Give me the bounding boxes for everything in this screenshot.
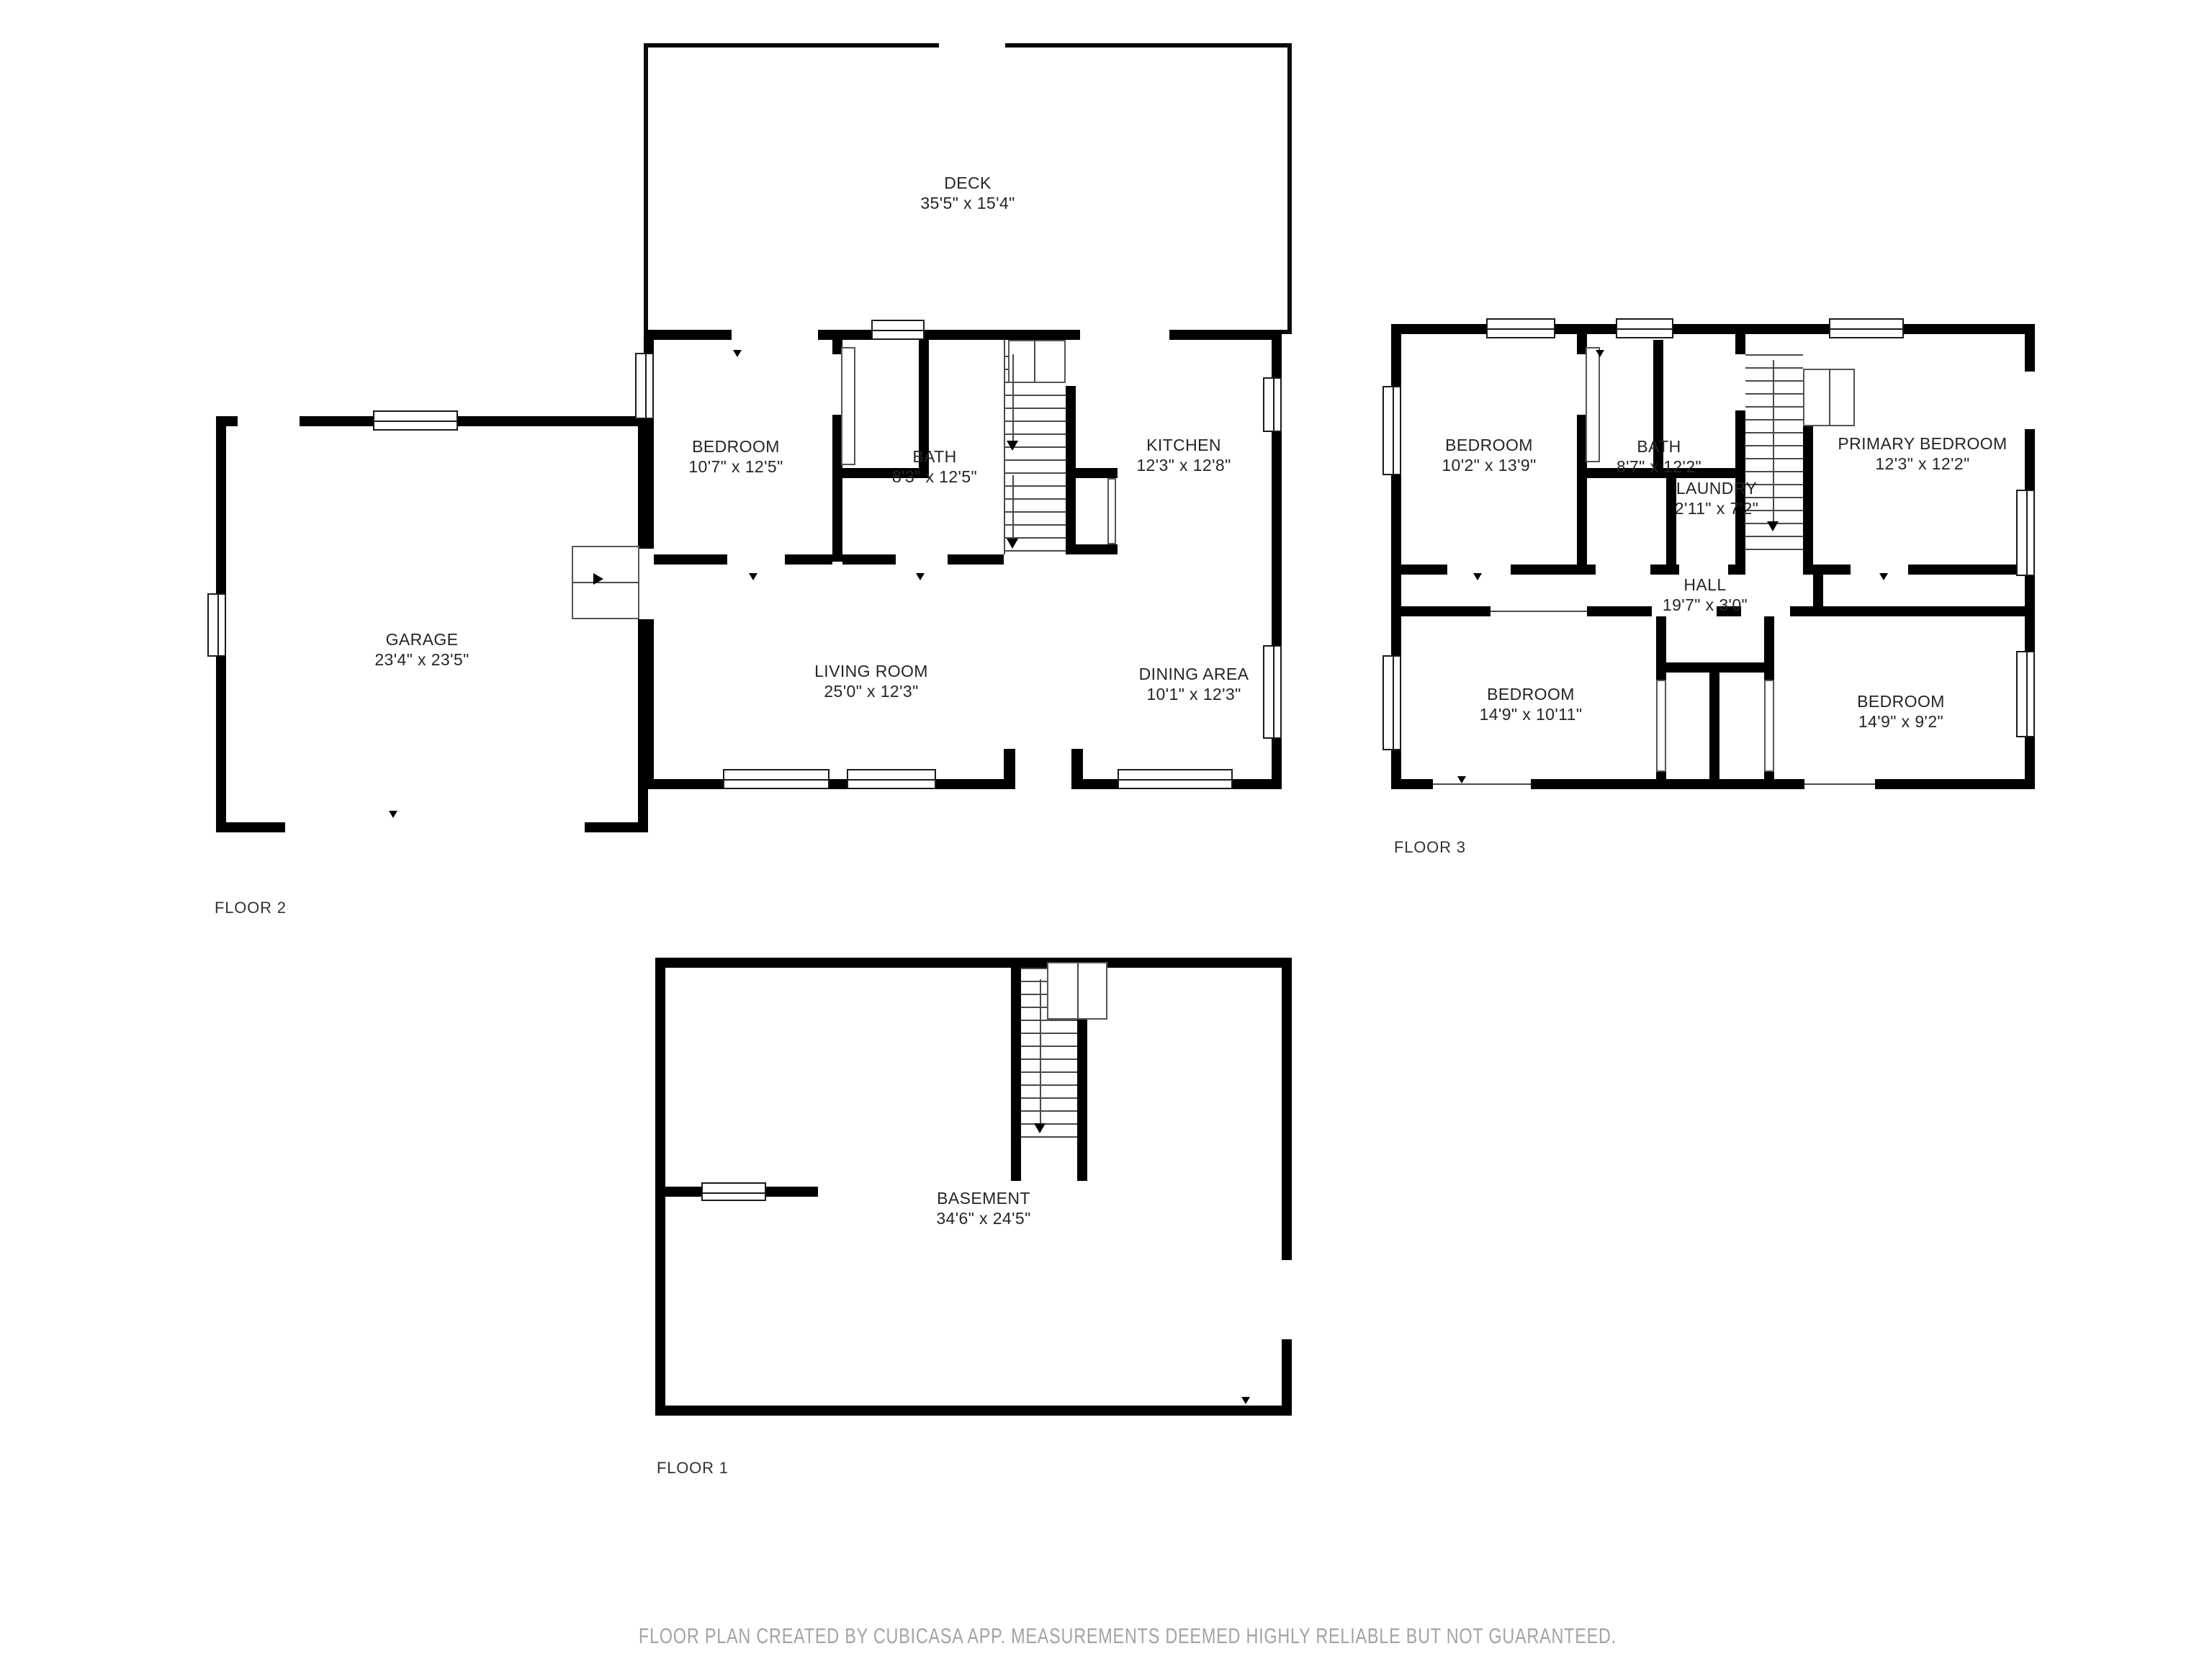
room-label-bath: BATH 8'7" x 12'2" bbox=[1617, 438, 1701, 478]
window bbox=[1263, 645, 1282, 739]
door-opening bbox=[1596, 565, 1650, 575]
room-dims: 34'6" x 24'5" bbox=[936, 1210, 1030, 1230]
window bbox=[1382, 655, 1401, 750]
garage-outline bbox=[216, 416, 648, 832]
window bbox=[847, 769, 936, 789]
opening-line bbox=[1491, 611, 1587, 612]
stair-down-arrow bbox=[1034, 1123, 1046, 1133]
room-name: LIVING ROOM bbox=[814, 662, 928, 683]
room-dims: 23'4" x 23'5" bbox=[374, 651, 469, 671]
stair-edge bbox=[1004, 340, 1005, 554]
stair-arrow-line bbox=[1012, 354, 1014, 441]
wall bbox=[1803, 426, 1813, 575]
window bbox=[701, 1182, 766, 1201]
room-dims: 35'5" x 15'4" bbox=[920, 194, 1015, 215]
door-opening bbox=[1679, 565, 1728, 575]
garage-door-opening bbox=[285, 822, 585, 832]
stair-arrow-line bbox=[1012, 475, 1014, 539]
door-opening bbox=[727, 554, 785, 565]
room-label-deck: DECK 35'5" x 15'4" bbox=[920, 174, 1015, 215]
door-arrow bbox=[1241, 1397, 1250, 1404]
room-label-living-room: LIVING ROOM 25'0" x 12'3" bbox=[814, 662, 928, 703]
door-arrow bbox=[1473, 573, 1482, 580]
window bbox=[373, 410, 458, 431]
wall bbox=[1004, 749, 1015, 789]
window-opening bbox=[238, 416, 300, 426]
room-dims: 12'3" x 12'8" bbox=[1136, 457, 1231, 477]
door-arrow bbox=[1596, 350, 1604, 357]
room-name: BEDROOM bbox=[1442, 436, 1536, 457]
window bbox=[1616, 318, 1673, 338]
room-name: BATH bbox=[892, 448, 977, 468]
room-name: BATH bbox=[1617, 438, 1701, 458]
wall bbox=[1011, 968, 1021, 1181]
door-arrow bbox=[916, 573, 925, 580]
room-label-basement: BASEMENT 34'6" x 24'5" bbox=[936, 1190, 1030, 1230]
stair-direction-arrow bbox=[593, 573, 603, 585]
window bbox=[2016, 490, 2035, 576]
room-dims: 14'9" x 9'2" bbox=[1857, 713, 1945, 733]
room-dims: 10'1" x 12'3" bbox=[1139, 685, 1249, 706]
door-opening bbox=[1735, 354, 1745, 410]
room-label-garage: GARAGE 23'4" x 23'5" bbox=[374, 631, 469, 671]
window bbox=[1118, 769, 1233, 789]
room-name: PRIMARY BEDROOM bbox=[1838, 435, 2007, 455]
closet-door bbox=[1656, 680, 1666, 772]
window bbox=[1263, 377, 1282, 432]
floor-label-1: FLOOR 1 bbox=[657, 1460, 729, 1478]
room-name: BEDROOM bbox=[1857, 693, 1945, 713]
stair-arrow-line bbox=[1773, 360, 1774, 521]
room-label-dining-area: DINING AREA 10'1" x 12'3" bbox=[1139, 665, 1249, 706]
stair-landing-line bbox=[1077, 962, 1079, 1020]
stair-down-arrow bbox=[1767, 521, 1779, 531]
room-name: GARAGE bbox=[374, 631, 469, 651]
room-name: DINING AREA bbox=[1139, 665, 1249, 685]
room-dims: 8'3" x 12'5" bbox=[892, 468, 977, 488]
window bbox=[2016, 651, 2035, 737]
room-name: BEDROOM bbox=[1480, 685, 1583, 706]
window bbox=[1486, 318, 1555, 338]
footer-disclaimer: FLOOR PLAN CREATED BY CUBICASA APP. MEAS… bbox=[639, 1624, 1617, 1649]
room-label-bedroom: BEDROOM 14'9" x 9'2" bbox=[1857, 693, 1945, 733]
wall bbox=[1071, 749, 1083, 789]
floor-label-3: FLOOR 3 bbox=[1394, 840, 1466, 857]
room-name: HALL bbox=[1663, 576, 1748, 596]
window bbox=[871, 320, 925, 340]
door-opening bbox=[1741, 606, 1790, 616]
wall bbox=[1066, 544, 1118, 554]
wall bbox=[1709, 673, 1719, 779]
stair-treads bbox=[1005, 356, 1066, 554]
room-dims: 19'7" x 3'0" bbox=[1663, 596, 1748, 616]
window bbox=[635, 353, 654, 419]
door-opening bbox=[896, 554, 948, 565]
room-label-bedroom: BEDROOM 14'9" x 10'11" bbox=[1480, 685, 1583, 726]
room-name: DECK bbox=[920, 174, 1015, 194]
door-arrow bbox=[389, 811, 397, 818]
wall bbox=[1066, 468, 1118, 478]
room-label-bath: BATH 8'3" x 12'5" bbox=[892, 448, 977, 488]
deck-door-opening bbox=[1080, 330, 1169, 340]
door-arrow bbox=[1457, 776, 1466, 783]
window bbox=[1382, 386, 1401, 475]
room-dims: 14'9" x 10'11" bbox=[1480, 706, 1583, 726]
stair-down-arrow bbox=[1007, 539, 1018, 549]
room-label-primary-bedroom: PRIMARY BEDROOM 12'3" x 12'2" bbox=[1838, 435, 2007, 475]
room-label-laundry: LAUNDRY 2'11" x 7'2" bbox=[1675, 480, 1758, 520]
floorplan-canvas: DECK 35'5" x 15'4" GARAGE 23'4" x 23'5" bbox=[0, 0, 2212, 1659]
room-name: BASEMENT bbox=[936, 1190, 1030, 1210]
room-name: KITCHEN bbox=[1136, 436, 1231, 457]
wall bbox=[1813, 565, 2025, 575]
room-label-bedroom: BEDROOM 10'7" x 12'5" bbox=[688, 438, 783, 478]
stair-landing bbox=[1008, 340, 1066, 383]
closet-door bbox=[1586, 347, 1600, 462]
room-label-bedroom: BEDROOM 10'2" x 13'9" bbox=[1442, 436, 1536, 477]
wall bbox=[1077, 1008, 1087, 1181]
room-dims: 12'3" x 12'2" bbox=[1838, 455, 2007, 475]
room-label-hall: HALL 19'7" x 3'0" bbox=[1663, 576, 1748, 616]
closet-door bbox=[1764, 680, 1774, 772]
door-arrow bbox=[749, 573, 757, 580]
room-dims: 2'11" x 7'2" bbox=[1675, 500, 1758, 520]
opening-line bbox=[1433, 783, 1531, 785]
step-line bbox=[572, 582, 639, 583]
deck-top-opening bbox=[939, 40, 1005, 52]
closet-door bbox=[841, 347, 855, 465]
stair-landing-line bbox=[1034, 340, 1035, 383]
stair-arrow-line bbox=[1040, 979, 1041, 1123]
floor-label-2: FLOOR 2 bbox=[215, 900, 287, 917]
window-opening bbox=[1282, 1260, 1292, 1339]
entry-door-opening bbox=[1015, 779, 1071, 789]
closet-door bbox=[1107, 478, 1116, 544]
room-label-kitchen: KITCHEN 12'3" x 12'8" bbox=[1136, 436, 1231, 477]
wall bbox=[1666, 662, 1764, 673]
window bbox=[207, 593, 226, 657]
opening-line bbox=[1804, 783, 1875, 785]
stair-down-arrow bbox=[1007, 441, 1018, 451]
window-opening bbox=[732, 330, 818, 340]
room-dims: 25'0" x 12'3" bbox=[814, 683, 928, 703]
window bbox=[723, 769, 829, 789]
floorplan-page: DECK 35'5" x 15'4" GARAGE 23'4" x 23'5" bbox=[0, 0, 2212, 1659]
stair-landing-line bbox=[1829, 369, 1830, 426]
room-dims: 8'7" x 12'2" bbox=[1617, 458, 1701, 478]
window bbox=[1829, 318, 1904, 338]
room-dims: 10'2" x 13'9" bbox=[1442, 457, 1536, 477]
room-name: LAUNDRY bbox=[1675, 480, 1758, 500]
window-opening bbox=[2025, 372, 2035, 429]
door-arrow bbox=[1879, 573, 1888, 580]
room-dims: 10'7" x 12'5" bbox=[688, 458, 783, 478]
room-name: BEDROOM bbox=[688, 438, 783, 458]
door-arrow bbox=[733, 350, 742, 357]
